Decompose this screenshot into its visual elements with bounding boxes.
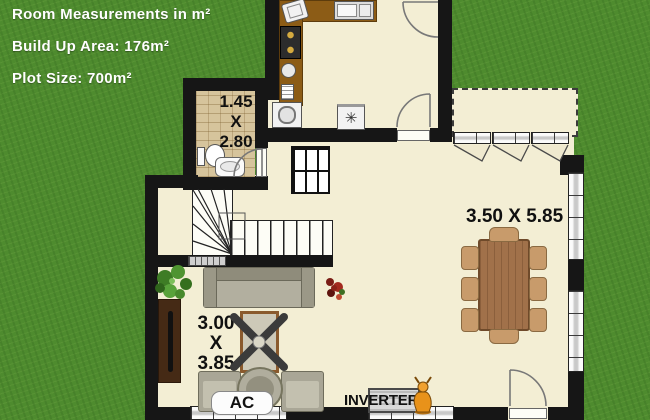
main-door-sill	[509, 408, 547, 419]
dining-chair-l2	[461, 277, 479, 301]
stairs-winder	[192, 188, 233, 256]
bathroom-dim-width: 1.45	[210, 92, 262, 112]
sofa-arm-right	[301, 268, 314, 307]
bathroom-door-sill	[256, 148, 267, 177]
living-dimensions: 3.00 X 3.85	[190, 314, 242, 374]
dining-chair-bottom	[489, 329, 519, 344]
stairs-straight-run	[230, 220, 333, 256]
living-dim-sep: X	[190, 334, 242, 354]
build-up-area-label: Build Up Area: 176m²	[12, 38, 169, 55]
kitchen-door-sill	[397, 130, 430, 141]
tv-icon	[168, 311, 173, 372]
inverter-label: INVERTER	[344, 392, 418, 409]
wall-kitchen-bottom-a	[265, 128, 397, 142]
dish-rack-icon	[281, 84, 294, 100]
ac-unit: AC	[211, 391, 273, 415]
sofa	[203, 267, 315, 308]
bath-sink-icon	[215, 157, 245, 177]
dining-table	[478, 239, 530, 331]
living-dim-width: 3.00	[190, 314, 242, 334]
bathroom-dim-length: 2.80	[210, 132, 262, 152]
bath-sink-bowl	[220, 161, 240, 172]
window-right-lower	[568, 290, 584, 372]
dining-chair-r2	[529, 277, 547, 301]
wall-under-stairs	[145, 255, 333, 267]
dining-chair-l3	[461, 308, 479, 332]
cutting-board-inner	[287, 3, 304, 18]
porch-floor	[452, 88, 578, 137]
sink-basin-right	[359, 4, 371, 17]
wall-left	[145, 175, 158, 420]
prep-sink-icon	[281, 63, 296, 78]
porch-window-1	[453, 132, 491, 144]
coffee-table	[240, 311, 279, 373]
window-right-upper	[568, 172, 584, 260]
sofa-arm-left	[204, 268, 217, 307]
armchair-right-seat	[286, 381, 319, 408]
wall-kitchen-right	[438, 0, 452, 142]
living-dim-length: 3.85	[190, 354, 242, 374]
dining-chair-r1	[529, 246, 547, 270]
washing-machine-icon	[272, 102, 302, 128]
washer-drum	[278, 106, 296, 124]
fridge-icon: ✳	[337, 104, 365, 130]
porch-window-3	[531, 132, 569, 144]
sofa-back	[204, 268, 314, 281]
tv-console	[158, 299, 181, 383]
wall-bath-left	[183, 78, 196, 190]
plan-title: Room Measurements in m²	[12, 6, 211, 23]
bathroom-dimensions: 1.45 X 2.80	[210, 92, 262, 152]
wall-kitchen-bottom-b	[430, 128, 452, 142]
duct-grid-window	[291, 146, 330, 194]
kitchen-sink-icon	[334, 1, 374, 20]
dining-chair-l1	[461, 246, 479, 270]
dining-chair-r3	[529, 308, 547, 332]
dining-chair-top	[489, 227, 519, 242]
floor-plan-canvas: Room Measurements in m² Build Up Area: 1…	[0, 0, 650, 420]
stove-icon	[280, 26, 301, 59]
armchair-right	[281, 371, 324, 412]
porch-window-2	[492, 132, 530, 144]
sink-basin-left	[337, 4, 357, 17]
dining-dimensions: 3.50 X 5.85	[466, 206, 563, 228]
bathroom-dim-sep: X	[210, 112, 262, 132]
toilet-tank	[197, 147, 205, 166]
plot-size-label: Plot Size: 700m²	[12, 70, 132, 87]
under-stair-vent	[188, 256, 226, 266]
